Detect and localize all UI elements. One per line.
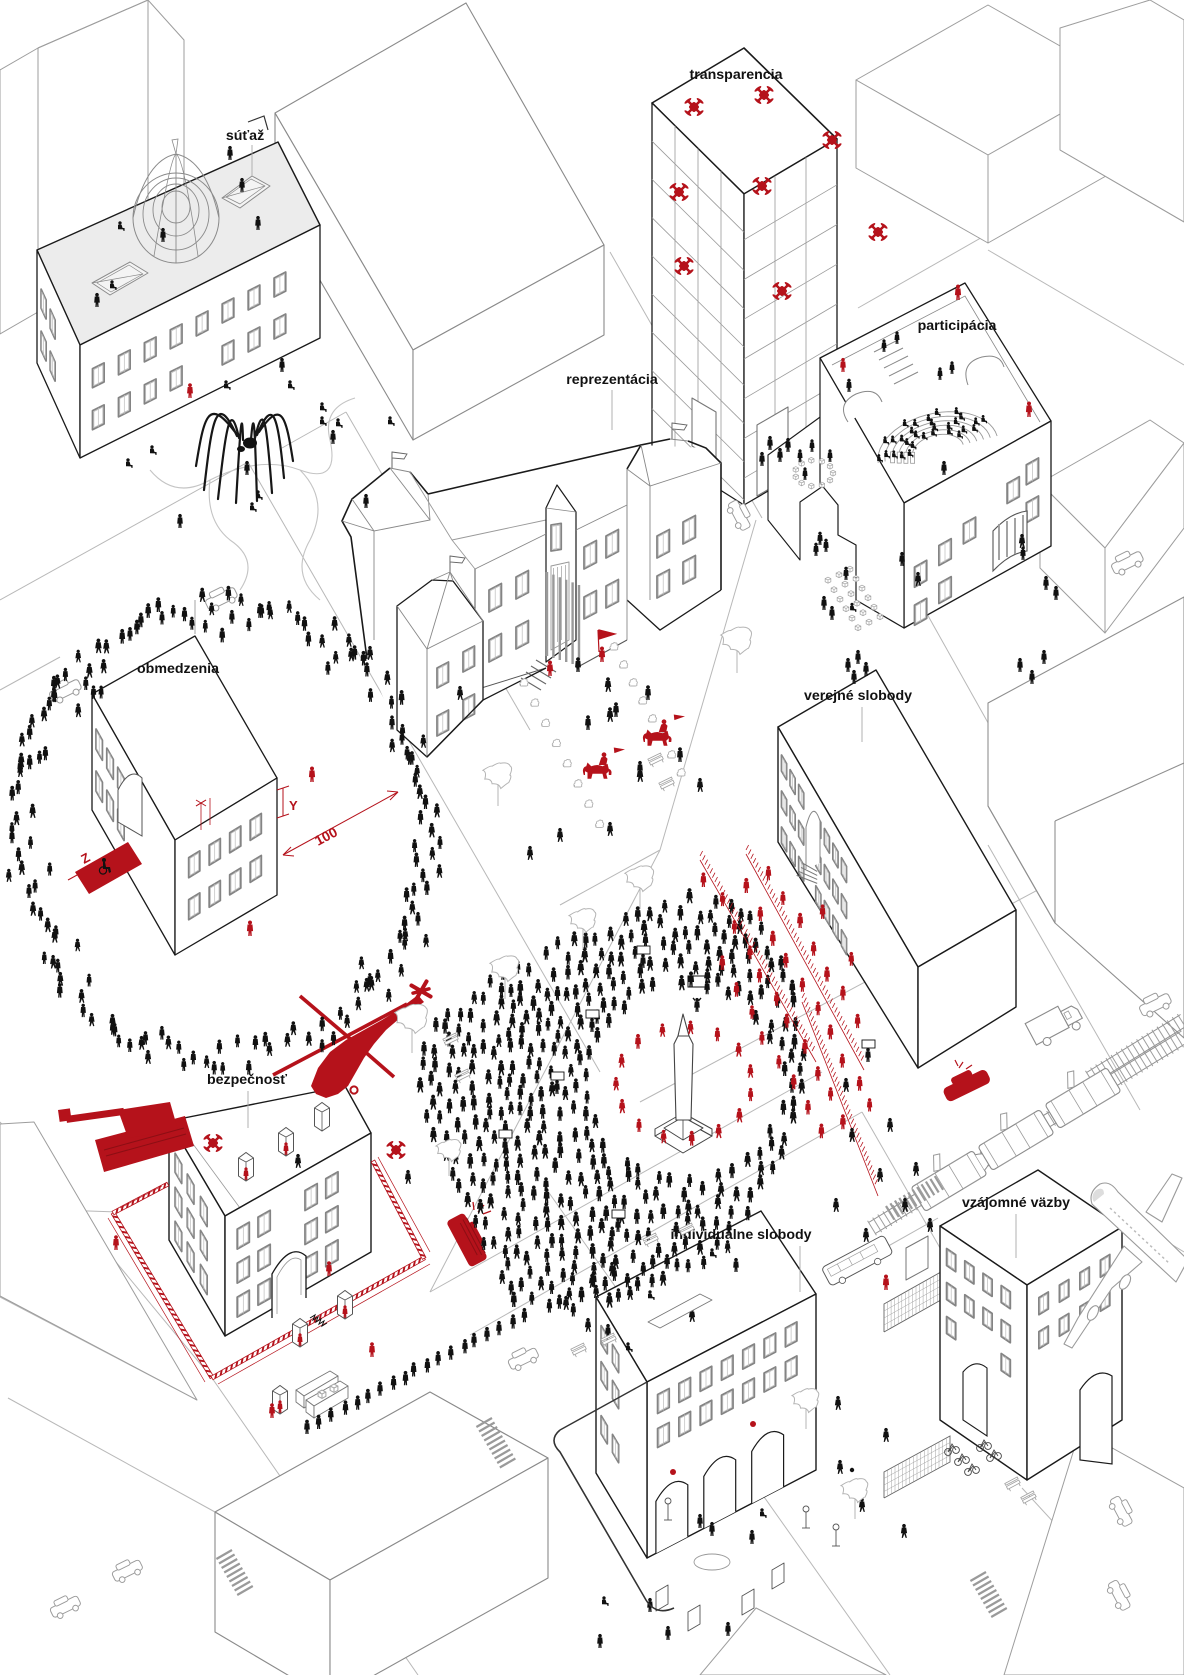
- svg-text:súťaž: súťaž: [226, 128, 264, 144]
- svg-text:transparencia: transparencia: [689, 67, 782, 83]
- svg-text:vzájomné väzby: vzájomné väzby: [962, 1195, 1070, 1211]
- svg-text:Y: Y: [289, 798, 298, 813]
- svg-text:reprezentácia: reprezentácia: [566, 372, 658, 388]
- svg-text:verejné slobody: verejné slobody: [804, 688, 912, 704]
- svg-text:participácia: participácia: [918, 318, 997, 334]
- svg-text:obmedzenia: obmedzenia: [137, 661, 219, 677]
